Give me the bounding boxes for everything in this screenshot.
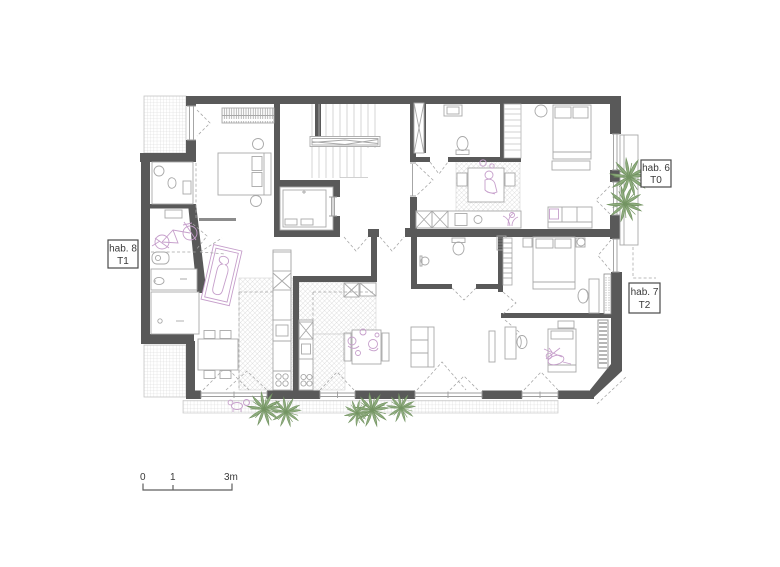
svg-text:T2: T2 bbox=[639, 300, 651, 311]
svg-text:T1: T1 bbox=[117, 256, 129, 267]
svg-text:T0: T0 bbox=[650, 175, 662, 186]
svg-text:hab. 6: hab. 6 bbox=[642, 163, 670, 174]
svg-text:0: 0 bbox=[140, 472, 146, 483]
svg-text:3m: 3m bbox=[224, 472, 238, 483]
svg-text:hab. 7: hab. 7 bbox=[631, 287, 659, 298]
svg-text:hab. 8: hab. 8 bbox=[109, 244, 137, 255]
svg-text:1: 1 bbox=[170, 472, 176, 483]
